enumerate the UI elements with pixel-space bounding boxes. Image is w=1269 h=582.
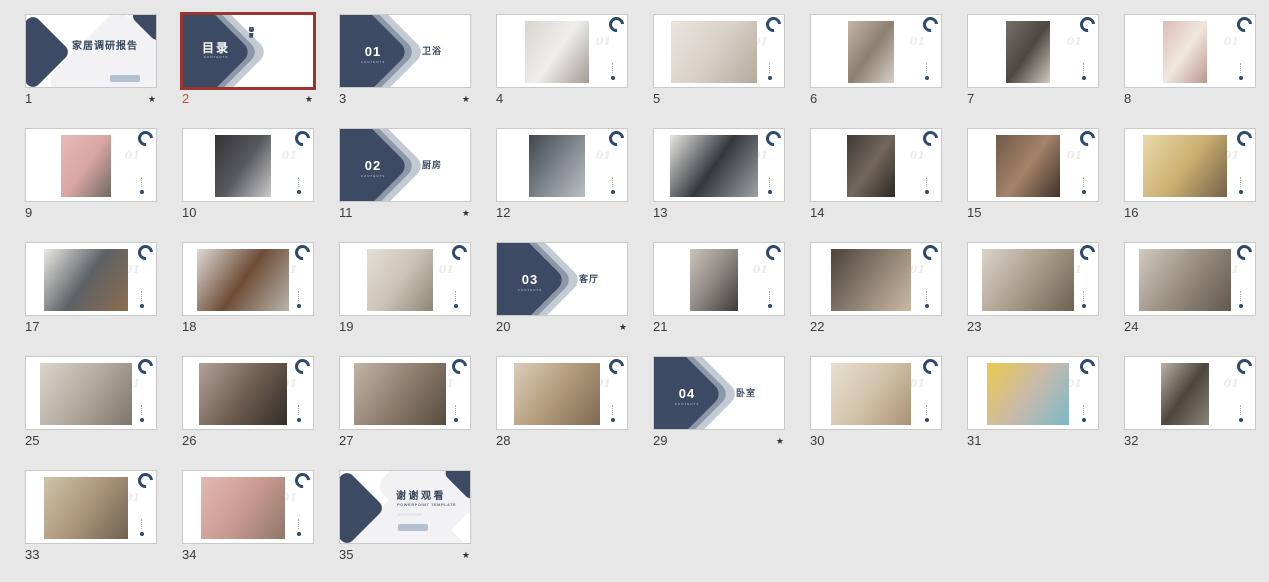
section-number-watermark: 01 — [1067, 35, 1082, 48]
crescent-icon — [449, 356, 470, 377]
slide-number: 12 — [496, 206, 510, 220]
slide-meta: 29★ — [653, 434, 785, 450]
page-marker-dot-icon — [768, 76, 772, 80]
room-photo — [367, 249, 433, 311]
slide-thumbnail-5[interactable]: 015 — [653, 14, 785, 108]
slide-meta: 27 — [339, 434, 471, 450]
page-marker-dots — [1083, 291, 1084, 301]
room-photo — [197, 249, 289, 311]
page-marker-dot-icon — [611, 418, 615, 422]
slide-canvas[interactable]: 01 — [967, 128, 1099, 202]
slide-thumbnail-19[interactable]: 0119 — [339, 242, 471, 336]
slide-thumbnail-1[interactable]: 家居调研报告1★ — [25, 14, 157, 108]
slide-meta: 9 — [25, 206, 157, 222]
slide-number: 2 — [182, 92, 189, 106]
page-marker-dots — [612, 405, 613, 415]
section-number-watermark: 01 — [596, 149, 611, 162]
slide-canvas[interactable]: 01 — [967, 14, 1099, 88]
transition-star-icon: ★ — [776, 434, 784, 448]
slide-number: 10 — [182, 206, 196, 220]
slide-number: 22 — [810, 320, 824, 334]
page-marker-dots — [769, 63, 770, 73]
slide-number: 23 — [967, 320, 981, 334]
crescent-icon — [292, 470, 313, 491]
section-number-watermark: 01 — [910, 377, 925, 390]
slide-canvas[interactable]: 01 — [653, 14, 785, 88]
page-marker-dot-icon — [297, 190, 301, 194]
room-photo — [201, 477, 285, 539]
slide-canvas[interactable]: 01 — [182, 242, 314, 316]
slide-thumbnail-14[interactable]: 0114 — [810, 128, 942, 222]
page-marker-dot-icon — [1082, 304, 1086, 308]
room-photo — [670, 135, 758, 197]
slide-canvas[interactable]: 01 — [25, 242, 157, 316]
slide-number: 32 — [1124, 434, 1138, 448]
page-marker-dot-icon — [140, 190, 144, 194]
slide-meta: 15 — [967, 206, 1099, 222]
slide-canvas[interactable]: 03CONTENTS客厅 — [496, 242, 628, 316]
room-photo — [44, 477, 128, 539]
section-number: 02 — [350, 158, 396, 173]
page-marker-dot-icon — [611, 76, 615, 80]
slide-number: 30 — [810, 434, 824, 448]
slide-canvas[interactable]: 01 — [25, 470, 157, 544]
room-photo — [1143, 135, 1227, 197]
slide-meta: 33 — [25, 548, 157, 564]
section-number-watermark: 01 — [910, 263, 925, 276]
slide-thumbnail-18[interactable]: 0118 — [182, 242, 314, 336]
slide-number: 9 — [25, 206, 32, 220]
slide-meta: 14 — [810, 206, 942, 222]
slide-thumbnail-2[interactable]: 目录CONTENTS1卫浴2厨房3客厅4卧室2★ — [182, 14, 314, 108]
crescent-icon — [1234, 356, 1255, 377]
room-photo — [1161, 363, 1209, 425]
slide-meta: 8 — [1124, 92, 1256, 108]
crescent-icon — [1077, 356, 1098, 377]
slide-meta: 2★ — [182, 92, 314, 108]
slide-number: 4 — [496, 92, 503, 106]
section-number-watermark: 01 — [1224, 377, 1239, 390]
slide-thumbnail-3[interactable]: 01CONTENTS卫浴3★ — [339, 14, 471, 108]
crescent-icon — [1234, 128, 1255, 149]
crescent-icon — [920, 356, 941, 377]
slide-number: 13 — [653, 206, 667, 220]
page-marker-dot-icon — [297, 532, 301, 536]
room-photo — [1006, 21, 1050, 83]
section-title: 卧室 — [728, 386, 764, 399]
section-subtitle: CONTENTS — [350, 60, 396, 64]
slide-canvas[interactable]: 01 — [653, 128, 785, 202]
page-marker-dot-icon — [140, 304, 144, 308]
page-marker-dots — [1083, 63, 1084, 73]
page-marker-dots — [926, 177, 927, 187]
slide-canvas[interactable]: 目录CONTENTS1卫浴2厨房3客厅4卧室 — [182, 14, 314, 88]
slide-thumbnail-9[interactable]: 019 — [25, 128, 157, 222]
slide-meta: 34 — [182, 548, 314, 564]
page-marker-dot-icon — [768, 190, 772, 194]
slide-number: 6 — [810, 92, 817, 106]
page-marker-dots — [455, 291, 456, 301]
slide-number: 17 — [25, 320, 39, 334]
section-number-watermark: 01 — [753, 263, 768, 276]
slide-thumbnail-22[interactable]: 0122 — [810, 242, 942, 336]
closing-text-line — [398, 513, 422, 516]
slide-thumbnail-17[interactable]: 0117 — [25, 242, 157, 336]
page-marker-dot-icon — [1239, 418, 1243, 422]
crescent-icon — [1234, 14, 1255, 35]
page-marker-dot-icon — [1082, 190, 1086, 194]
crescent-icon — [135, 128, 156, 149]
crescent-icon — [606, 14, 627, 35]
slide-meta: 23 — [967, 320, 1099, 336]
slide-thumbnail-25[interactable]: 0125 — [25, 356, 157, 450]
section-number-watermark: 01 — [910, 149, 925, 162]
crescent-icon — [1234, 242, 1255, 263]
page-marker-dot-icon — [140, 532, 144, 536]
page-marker-dot-icon — [1082, 418, 1086, 422]
slide-canvas[interactable]: 01 — [182, 128, 314, 202]
slide-thumbnail-11[interactable]: 02CONTENTS厨房11★ — [339, 128, 471, 222]
slide-meta: 4 — [496, 92, 628, 108]
section-subtitle: CONTENTS — [664, 402, 710, 406]
slide-thumbnail-35[interactable]: 谢谢观看POWERPOINT TEMPLATE35★ — [339, 470, 471, 564]
page-marker-dots — [298, 291, 299, 301]
slide-thumbnail-8[interactable]: 018 — [1124, 14, 1256, 108]
slide-number: 21 — [653, 320, 667, 334]
slide-canvas[interactable]: 01 — [1124, 242, 1256, 316]
slide-sorter: 家居调研报告1★目录CONTENTS1卫浴2厨房3客厅4卧室2★01CONTEN… — [0, 0, 1269, 564]
slide-number: 27 — [339, 434, 353, 448]
slide-canvas[interactable]: 01 — [810, 14, 942, 88]
slide-number: 19 — [339, 320, 353, 334]
section-subtitle: CONTENTS — [350, 174, 396, 178]
slide-meta: 24 — [1124, 320, 1256, 336]
page-marker-dots — [1240, 177, 1241, 187]
crescent-icon — [292, 128, 313, 149]
crescent-icon — [1077, 14, 1098, 35]
slide-meta: 31 — [967, 434, 1099, 450]
slide-number: 35 — [339, 548, 353, 562]
page-marker-dots — [1083, 177, 1084, 187]
room-photo — [354, 363, 446, 425]
page-marker-dot-icon — [297, 418, 301, 422]
page-marker-dot-icon — [1239, 76, 1243, 80]
transition-star-icon: ★ — [462, 206, 470, 220]
room-photo — [525, 21, 589, 83]
slide-thumbnail-4[interactable]: 014 — [496, 14, 628, 108]
slide-canvas[interactable]: 01 — [810, 128, 942, 202]
crescent-icon — [763, 14, 784, 35]
page-marker-dots — [141, 519, 142, 529]
slide-canvas[interactable]: 01 — [339, 356, 471, 430]
page-marker-dots — [1240, 63, 1241, 73]
room-photo — [215, 135, 271, 197]
slide-thumbnail-29[interactable]: 04CONTENTS卧室29★ — [653, 356, 785, 450]
section-number: 01 — [350, 44, 396, 59]
page-marker-dots — [455, 405, 456, 415]
crescent-icon — [920, 242, 941, 263]
slide-thumbnail-33[interactable]: 0133 — [25, 470, 157, 564]
section-number-watermark: 01 — [282, 149, 297, 162]
crescent-icon — [292, 356, 313, 377]
page-marker-dot-icon — [1082, 76, 1086, 80]
slide-thumbnail-20[interactable]: 03CONTENTS客厅20★ — [496, 242, 628, 336]
room-photo — [199, 363, 287, 425]
slide-canvas[interactable]: 01 — [1124, 14, 1256, 88]
room-photo — [40, 363, 132, 425]
page-marker-dots — [1083, 405, 1084, 415]
slide-canvas[interactable]: 01 — [967, 356, 1099, 430]
slide-canvas[interactable]: 01 — [339, 242, 471, 316]
page-marker-dots — [926, 291, 927, 301]
room-photo — [1163, 21, 1207, 83]
slide-number: 11 — [339, 206, 353, 220]
slide-canvas[interactable]: 01 — [967, 242, 1099, 316]
slide-canvas[interactable]: 01 — [496, 14, 628, 88]
slide-canvas[interactable]: 01 — [496, 128, 628, 202]
slide-thumbnail-15[interactable]: 0115 — [967, 128, 1099, 222]
slide-meta: 20★ — [496, 320, 628, 336]
slide-number: 5 — [653, 92, 660, 106]
slide-meta: 32 — [1124, 434, 1256, 450]
page-marker-dot-icon — [611, 190, 615, 194]
slide-meta: 11★ — [339, 206, 471, 222]
slide-canvas[interactable]: 01 — [182, 470, 314, 544]
slide-meta: 18 — [182, 320, 314, 336]
toc-title: 目录 — [191, 39, 241, 56]
section-title: 客厅 — [571, 272, 607, 285]
page-marker-dot-icon — [925, 190, 929, 194]
slide-thumbnail-6[interactable]: 016 — [810, 14, 942, 108]
slide-thumbnail-34[interactable]: 0134 — [182, 470, 314, 564]
crescent-icon — [135, 470, 156, 491]
room-photo — [690, 249, 738, 311]
slide-meta: 13 — [653, 206, 785, 222]
crescent-icon — [606, 356, 627, 377]
transition-star-icon: ★ — [462, 92, 470, 106]
page-marker-dots — [612, 177, 613, 187]
slide-thumbnail-23[interactable]: 0123 — [967, 242, 1099, 336]
slide-canvas[interactable]: 01 — [653, 242, 785, 316]
page-marker-dots — [1240, 291, 1241, 301]
crescent-icon — [920, 14, 941, 35]
slide-canvas[interactable]: 01 — [810, 356, 942, 430]
closing-arrow-shape — [340, 471, 470, 543]
slide-number: 24 — [1124, 320, 1138, 334]
slide-number: 20 — [496, 320, 510, 334]
page-marker-dots — [612, 63, 613, 73]
room-photo — [1139, 249, 1231, 311]
slide-thumbnail-32[interactable]: 0132 — [1124, 356, 1256, 450]
slide-thumbnail-30[interactable]: 0130 — [810, 356, 942, 450]
section-number-watermark: 01 — [910, 35, 925, 48]
closing-title: 谢谢观看 — [396, 487, 446, 502]
slide-thumbnail-16[interactable]: 0116 — [1124, 128, 1256, 222]
room-photo — [996, 135, 1060, 197]
slide-meta: 7 — [967, 92, 1099, 108]
room-photo — [61, 135, 111, 197]
page-marker-dots — [141, 291, 142, 301]
closing-subtitle: POWERPOINT TEMPLATE — [397, 502, 456, 507]
section-number-watermark: 01 — [125, 149, 140, 162]
page-marker-dots — [1240, 405, 1241, 415]
crescent-icon — [920, 128, 941, 149]
slide-thumbnail-24[interactable]: 0124 — [1124, 242, 1256, 336]
page-marker-dot-icon — [768, 304, 772, 308]
presentation-title: 家居调研报告 — [72, 37, 138, 52]
slide-number: 16 — [1124, 206, 1138, 220]
page-marker-dot-icon — [140, 418, 144, 422]
slide-number: 34 — [182, 548, 196, 562]
toc-subtitle: CONTENTS — [191, 55, 241, 59]
page-marker-dot-icon — [925, 418, 929, 422]
slide-meta: 12 — [496, 206, 628, 222]
room-photo — [987, 363, 1069, 425]
page-marker-dots — [141, 177, 142, 187]
slide-number: 26 — [182, 434, 196, 448]
slide-meta: 22 — [810, 320, 942, 336]
transition-star-icon: ★ — [148, 92, 156, 106]
slide-meta: 10 — [182, 206, 314, 222]
slide-thumbnail-10[interactable]: 0110 — [182, 128, 314, 222]
slide-number: 14 — [810, 206, 824, 220]
slide-meta: 1★ — [25, 92, 157, 108]
slide-thumbnail-13[interactable]: 0113 — [653, 128, 785, 222]
slide-meta: 6 — [810, 92, 942, 108]
room-photo — [982, 249, 1074, 311]
section-number: 04 — [664, 386, 710, 401]
slide-thumbnail-27[interactable]: 0127 — [339, 356, 471, 450]
slide-canvas[interactable]: 04CONTENTS卧室 — [653, 356, 785, 430]
page-marker-dots — [141, 405, 142, 415]
slide-number: 31 — [967, 434, 981, 448]
slide-meta: 35★ — [339, 548, 471, 564]
page-marker-dots — [769, 291, 770, 301]
page-marker-dots — [298, 405, 299, 415]
crescent-icon — [135, 242, 156, 263]
crescent-icon — [1077, 128, 1098, 149]
room-photo — [848, 21, 894, 83]
slide-canvas[interactable]: 01 — [1124, 128, 1256, 202]
room-photo — [847, 135, 895, 197]
slide-canvas[interactable]: 01 — [1124, 356, 1256, 430]
section-number-watermark: 01 — [596, 35, 611, 48]
slide-number: 18 — [182, 320, 196, 334]
slide-thumbnail-26[interactable]: 0126 — [182, 356, 314, 450]
page-marker-dot-icon — [454, 418, 458, 422]
slide-number: 15 — [967, 206, 981, 220]
slide-canvas[interactable]: 02CONTENTS厨房 — [339, 128, 471, 202]
room-photo — [831, 249, 911, 311]
room-photo — [671, 21, 757, 83]
slide-number: 3 — [339, 92, 346, 106]
slide-meta: 3★ — [339, 92, 471, 108]
presenter-badge — [110, 75, 140, 82]
crescent-icon — [135, 356, 156, 377]
slide-canvas[interactable]: 01 — [810, 242, 942, 316]
crescent-icon — [763, 128, 784, 149]
slide-thumbnail-28[interactable]: 0128 — [496, 356, 628, 450]
crescent-icon — [763, 242, 784, 263]
transition-star-icon: ★ — [305, 92, 313, 106]
slide-canvas[interactable]: 01CONTENTS卫浴 — [339, 14, 471, 88]
toc-item-label: 卧室 — [249, 27, 254, 39]
section-number-watermark: 01 — [1224, 35, 1239, 48]
slide-canvas[interactable]: 01 — [182, 356, 314, 430]
crescent-icon — [449, 242, 470, 263]
slide-meta: 21 — [653, 320, 785, 336]
page-marker-dots — [926, 63, 927, 73]
slide-canvas[interactable]: 01 — [496, 356, 628, 430]
page-marker-dot-icon — [297, 304, 301, 308]
section-title: 卫浴 — [414, 44, 450, 57]
page-marker-dot-icon — [1239, 190, 1243, 194]
crescent-icon — [1077, 242, 1098, 263]
slide-canvas[interactable]: 01 — [25, 128, 157, 202]
page-marker-dot-icon — [925, 304, 929, 308]
crescent-icon — [292, 242, 313, 263]
slide-canvas[interactable]: 01 — [25, 356, 157, 430]
slide-meta: 16 — [1124, 206, 1256, 222]
room-photo — [529, 135, 585, 197]
slide-number: 28 — [496, 434, 510, 448]
page-marker-dots — [298, 177, 299, 187]
section-number: 03 — [507, 272, 553, 287]
slide-meta: 28 — [496, 434, 628, 450]
slide-number: 25 — [25, 434, 39, 448]
page-marker-dots — [926, 405, 927, 415]
room-photo — [44, 249, 128, 311]
slide-meta: 19 — [339, 320, 471, 336]
page-marker-dots — [769, 177, 770, 187]
section-number-watermark: 01 — [439, 263, 454, 276]
slide-meta: 5 — [653, 92, 785, 108]
slide-canvas[interactable]: 谢谢观看POWERPOINT TEMPLATE — [339, 470, 471, 544]
slide-canvas[interactable]: 家居调研报告 — [25, 14, 157, 88]
section-number-watermark: 01 — [1067, 149, 1082, 162]
slide-grid: 家居调研报告1★目录CONTENTS1卫浴2厨房3客厅4卧室2★01CONTEN… — [0, 0, 1269, 564]
slide-thumbnail-12[interactable]: 0112 — [496, 128, 628, 222]
slide-number: 29 — [653, 434, 667, 448]
slide-meta: 25 — [25, 434, 157, 450]
slide-number: 1 — [25, 92, 32, 106]
page-marker-dot-icon — [454, 304, 458, 308]
slide-number: 8 — [1124, 92, 1131, 106]
slide-meta: 26 — [182, 434, 314, 450]
slide-meta: 30 — [810, 434, 942, 450]
slide-meta: 17 — [25, 320, 157, 336]
slide-number: 7 — [967, 92, 974, 106]
transition-star-icon: ★ — [619, 320, 627, 334]
section-subtitle: CONTENTS — [507, 288, 553, 292]
page-marker-dot-icon — [1239, 304, 1243, 308]
section-title: 厨房 — [414, 158, 450, 171]
closing-badge — [398, 524, 428, 531]
room-photo — [831, 363, 911, 425]
page-marker-dot-icon — [925, 76, 929, 80]
transition-star-icon: ★ — [462, 548, 470, 562]
slide-thumbnail-31[interactable]: 0131 — [967, 356, 1099, 450]
slide-thumbnail-21[interactable]: 0121 — [653, 242, 785, 336]
page-marker-dots — [298, 519, 299, 529]
slide-number: 33 — [25, 548, 39, 562]
room-photo — [514, 363, 600, 425]
slide-thumbnail-7[interactable]: 017 — [967, 14, 1099, 108]
crescent-icon — [606, 128, 627, 149]
